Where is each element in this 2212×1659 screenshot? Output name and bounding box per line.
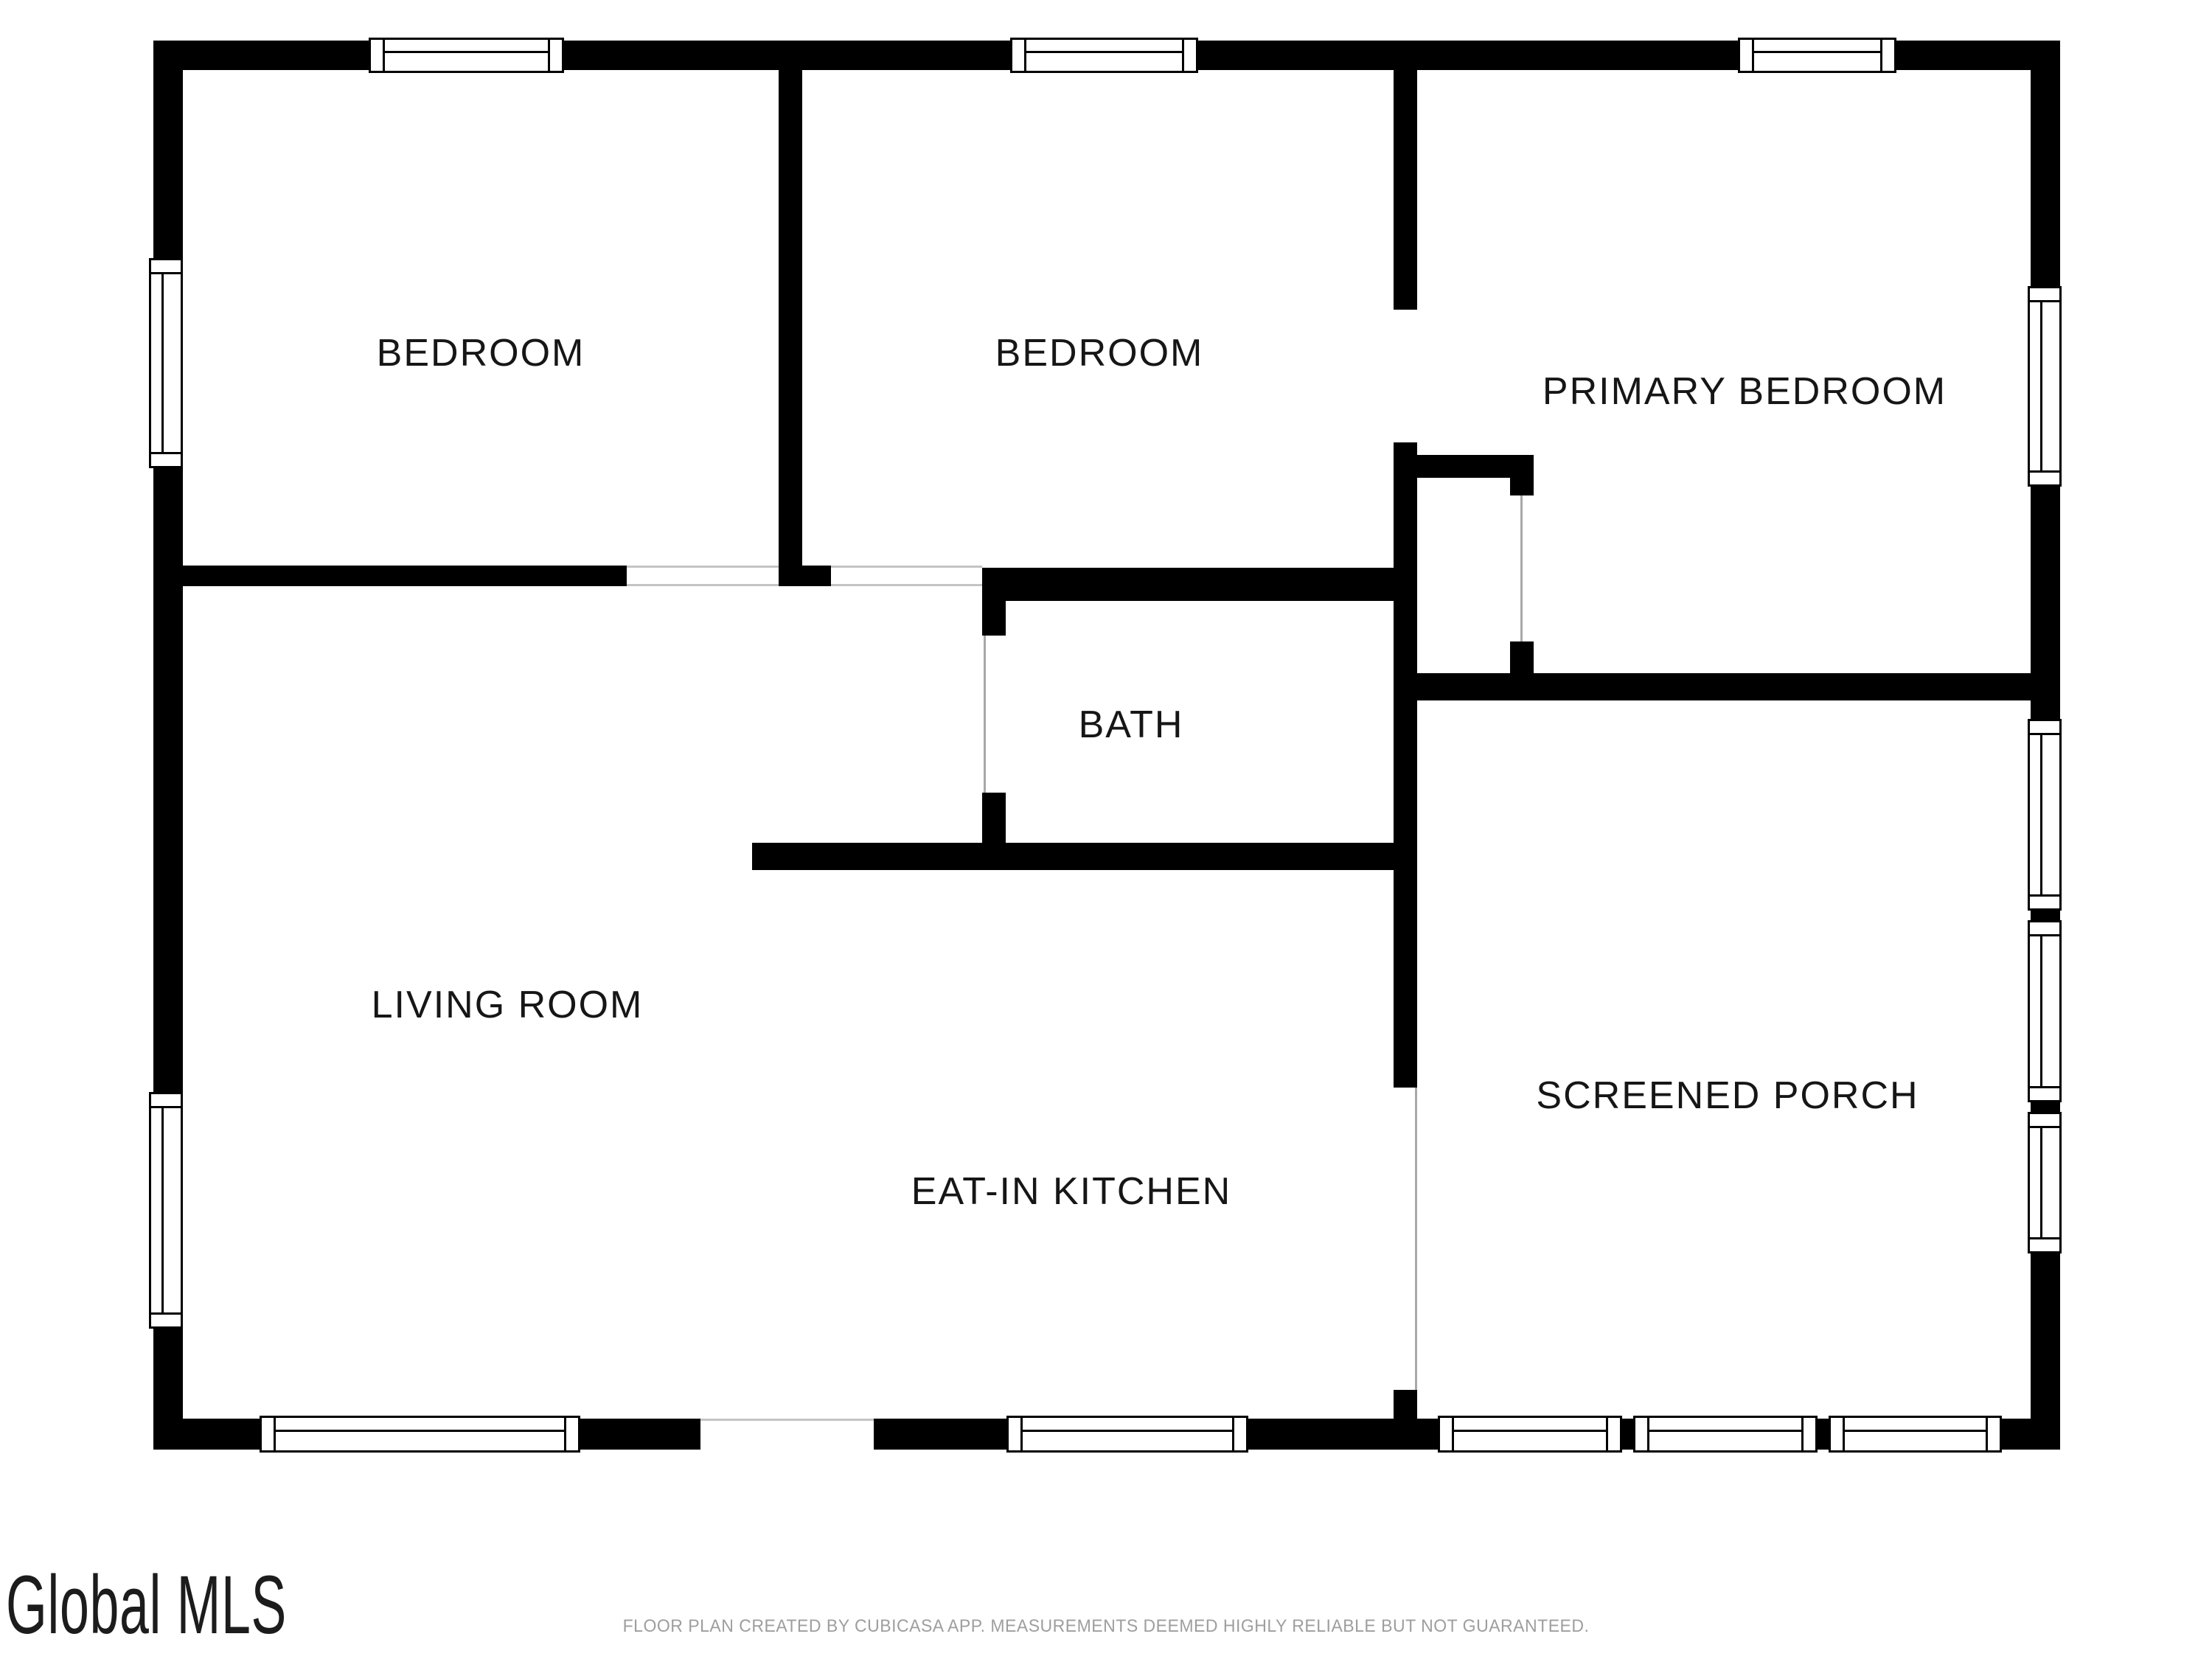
room-label-eat-in-kitchen: EAT-IN KITCHEN	[911, 1169, 1231, 1214]
wall-bedroom2-primary-lower	[1394, 442, 1417, 700]
opening-front-door-line	[700, 1419, 874, 1421]
window-living-bottom	[260, 1416, 580, 1453]
wall-bedroom1-living	[183, 566, 627, 586]
window-porch-bottom-1	[1438, 1416, 1622, 1453]
wall-porch-left-stub	[1394, 1390, 1417, 1419]
wall-bath-left-lower	[982, 793, 1006, 843]
wall-bath-left-upper-stub	[982, 601, 1006, 636]
wall-kitchen-hall	[752, 843, 1417, 870]
window-porch-right-3	[2028, 1112, 2062, 1253]
room-label-bedroom-2: BEDROOM	[995, 331, 1204, 375]
wall-hall-stub	[779, 566, 831, 586]
opening-bedroom2-door-top-line	[831, 566, 982, 568]
window-primary-top	[1738, 38, 1896, 73]
opening-bedroom1-door-bottom-line	[627, 584, 779, 586]
room-label-bath: BATH	[1079, 703, 1184, 747]
room-label-screened-porch: SCREENED PORCH	[1536, 1074, 1919, 1118]
opening-line-porch	[1415, 1088, 1417, 1390]
room-label-living-room: LIVING ROOM	[372, 983, 644, 1027]
wall-bedroom1-bedroom2	[779, 70, 802, 586]
window-porch-right-1	[2028, 719, 2062, 911]
window-living-left	[149, 1092, 183, 1329]
wall-primary-porch	[1394, 673, 2031, 700]
door-line-bath	[984, 636, 986, 793]
window-bedroom2-top	[1010, 38, 1198, 73]
room-label-primary-bedroom: PRIMARY BEDROOM	[1543, 369, 1947, 414]
wall-bath-top	[982, 568, 1394, 601]
window-bedroom1-left	[149, 258, 183, 468]
opening-bedroom2-door-bottom-line	[831, 584, 982, 586]
window-porch-bottom-2	[1633, 1416, 1818, 1453]
global-mls-watermark: Global MLS	[6, 1557, 287, 1652]
window-porch-right-2	[2028, 920, 2062, 1102]
opening-bedroom1-door-top-line	[627, 566, 779, 568]
window-porch-bottom-3	[1829, 1416, 2002, 1453]
wall-closet-right-stub-top	[1510, 478, 1534, 495]
footer-disclaimer: FLOOR PLAN CREATED BY CUBICASA APP. MEAS…	[623, 1616, 1590, 1637]
room-label-bedroom-1: BEDROOM	[377, 331, 585, 375]
window-primary-right	[2028, 286, 2062, 487]
wall-bedroom2-primary-upper	[1394, 70, 1417, 310]
wall-closet-top	[1394, 455, 1534, 478]
floor-plan-canvas: BEDROOM BEDROOM PRIMARY BEDROOM BATH LIV…	[0, 0, 2212, 1659]
wall-kitchen-porch	[1394, 700, 1417, 1088]
window-bedroom1-top	[369, 38, 564, 73]
wall-closet-right-stub-bottom	[1510, 641, 1534, 673]
door-line-closet	[1520, 495, 1523, 641]
window-kitchen-bottom	[1006, 1416, 1248, 1453]
